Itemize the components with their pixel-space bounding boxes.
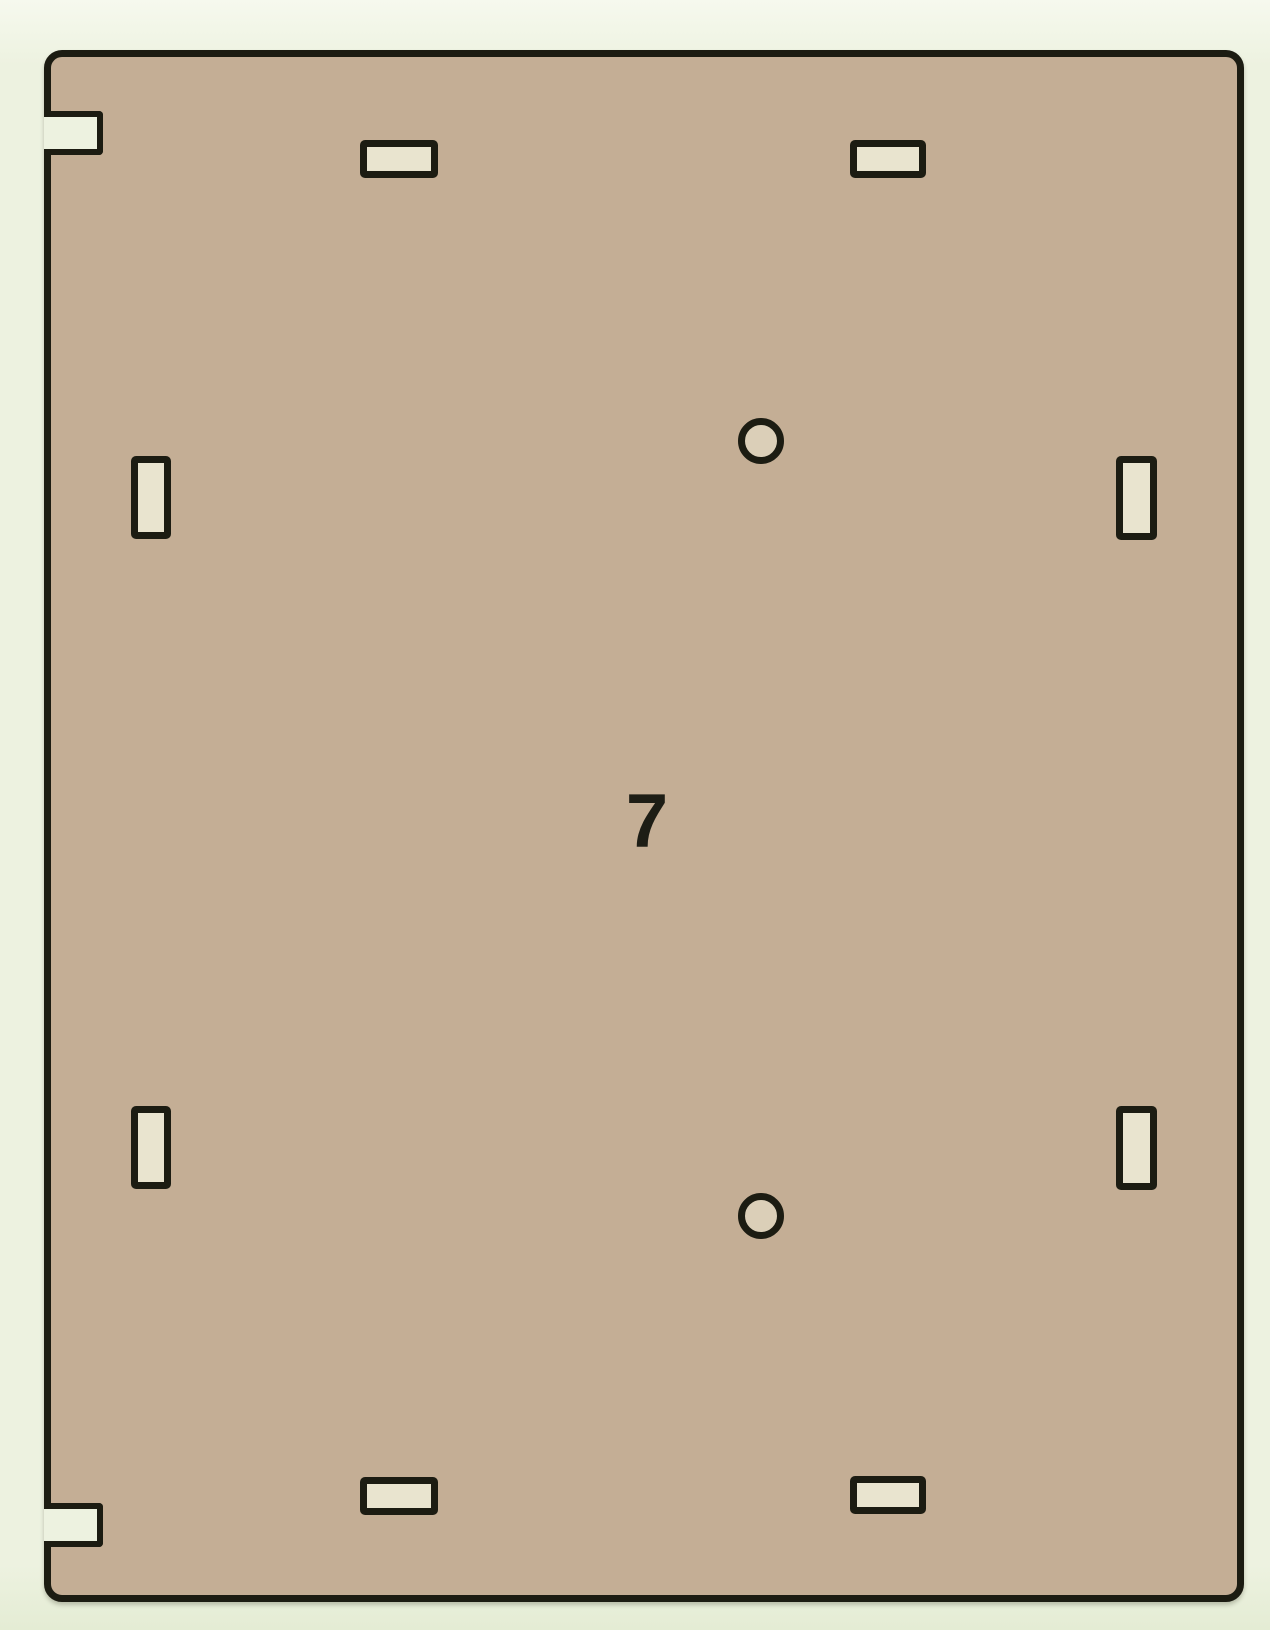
notch-left-bottom [44,1503,103,1547]
slot-bottom-right [850,1476,926,1514]
slot-mid-upper-left [131,456,171,539]
hole-upper [738,418,784,464]
notch-left-top [44,111,103,155]
slot-mid-upper-right [1116,456,1157,540]
slot-top-right [850,140,926,178]
slot-bottom-left [360,1477,438,1515]
slot-top-left [360,140,438,178]
slot-mid-lower-left [131,1106,171,1189]
part-number-label: 7 [626,778,668,865]
slot-mid-lower-right [1116,1106,1157,1190]
hole-lower [738,1193,784,1239]
